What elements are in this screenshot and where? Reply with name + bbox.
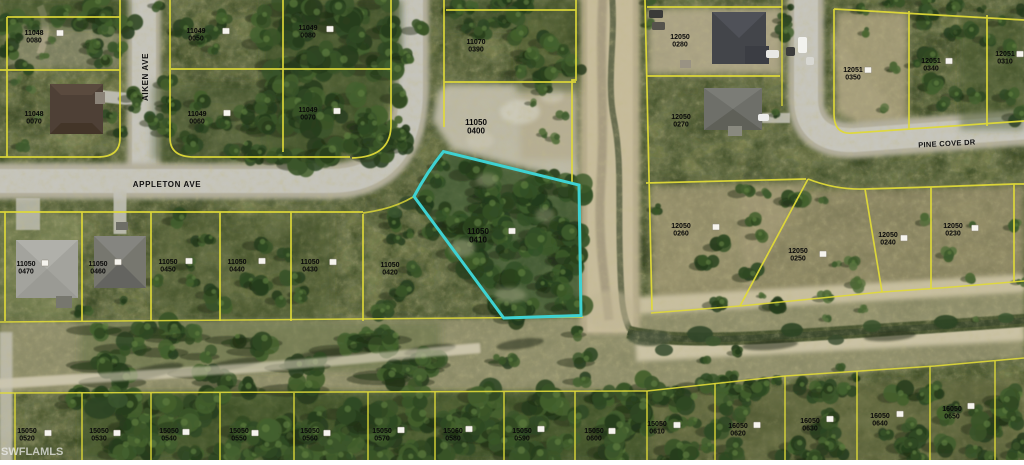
svg-text:0060: 0060 — [189, 119, 205, 126]
svg-text:APPLETON AVE: APPLETON AVE — [133, 180, 201, 189]
svg-text:12050: 12050 — [671, 114, 691, 121]
svg-text:0240: 0240 — [880, 240, 896, 247]
svg-text:0390: 0390 — [468, 47, 484, 54]
svg-text:16050: 16050 — [728, 423, 748, 430]
svg-text:0050: 0050 — [188, 36, 204, 43]
svg-text:11050: 11050 — [300, 259, 319, 266]
svg-text:0470: 0470 — [18, 269, 34, 276]
svg-text:11070: 11070 — [466, 39, 485, 46]
svg-text:11050: 11050 — [16, 261, 35, 268]
svg-text:15050: 15050 — [372, 428, 392, 435]
svg-text:0310: 0310 — [997, 59, 1013, 66]
svg-text:0080: 0080 — [26, 38, 42, 45]
svg-text:11049: 11049 — [298, 107, 317, 114]
svg-text:15050: 15050 — [584, 428, 604, 435]
svg-text:0230: 0230 — [945, 231, 961, 238]
svg-text:0570: 0570 — [374, 436, 390, 443]
svg-text:0580: 0580 — [445, 436, 461, 443]
svg-text:12051: 12051 — [921, 58, 941, 65]
svg-text:0600: 0600 — [586, 436, 602, 443]
svg-text:12051: 12051 — [995, 51, 1015, 58]
svg-text:0560: 0560 — [302, 436, 318, 443]
svg-text:12050: 12050 — [788, 248, 808, 255]
svg-text:11050: 11050 — [88, 261, 107, 268]
svg-text:0280: 0280 — [672, 42, 688, 49]
svg-text:16050: 16050 — [870, 413, 890, 420]
svg-text:15050: 15050 — [300, 428, 320, 435]
svg-text:0350: 0350 — [845, 75, 861, 82]
svg-text:12050: 12050 — [670, 34, 690, 41]
svg-text:11048: 11048 — [24, 30, 43, 37]
svg-text:0430: 0430 — [302, 267, 318, 274]
svg-text:0630: 0630 — [802, 426, 818, 433]
svg-text:15050: 15050 — [647, 421, 667, 428]
svg-text:0070: 0070 — [26, 119, 42, 126]
svg-text:12050: 12050 — [878, 232, 898, 239]
svg-text:11048: 11048 — [24, 111, 43, 118]
svg-text:11050: 11050 — [227, 259, 246, 266]
svg-text:0650: 0650 — [944, 414, 960, 421]
svg-text:16050: 16050 — [800, 418, 820, 425]
svg-text:0590: 0590 — [514, 436, 530, 443]
svg-text:0340: 0340 — [923, 66, 939, 73]
svg-text:0080: 0080 — [300, 33, 316, 40]
svg-text:15050: 15050 — [512, 428, 532, 435]
svg-text:0550: 0550 — [231, 436, 247, 443]
svg-text:11049: 11049 — [187, 111, 206, 118]
svg-text:SWFLAMLS: SWFLAMLS — [1, 446, 63, 458]
svg-text:AIKEN AVE: AIKEN AVE — [141, 53, 150, 101]
svg-text:15050: 15050 — [159, 428, 179, 435]
svg-text:0540: 0540 — [161, 436, 177, 443]
svg-text:0400: 0400 — [467, 127, 485, 136]
svg-text:0070: 0070 — [300, 115, 316, 122]
svg-text:0460: 0460 — [90, 269, 106, 276]
svg-text:16050: 16050 — [942, 406, 962, 413]
svg-text:0640: 0640 — [872, 421, 888, 428]
svg-text:15050: 15050 — [89, 428, 109, 435]
svg-text:11049: 11049 — [298, 25, 317, 32]
svg-text:0410: 0410 — [469, 236, 487, 245]
svg-text:11050: 11050 — [158, 259, 177, 266]
svg-text:12050: 12050 — [671, 223, 691, 230]
svg-text:0270: 0270 — [673, 122, 689, 129]
svg-text:15050: 15050 — [17, 428, 37, 435]
svg-text:0250: 0250 — [790, 256, 806, 263]
svg-text:15060: 15060 — [443, 428, 463, 435]
svg-text:0520: 0520 — [19, 436, 35, 443]
svg-text:0610: 0610 — [649, 429, 665, 436]
svg-text:0450: 0450 — [160, 267, 176, 274]
svg-text:0620: 0620 — [730, 431, 746, 438]
svg-text:12051: 12051 — [843, 67, 863, 74]
svg-text:15050: 15050 — [229, 428, 249, 435]
svg-text:12050: 12050 — [943, 223, 963, 230]
svg-text:0440: 0440 — [229, 267, 245, 274]
svg-text:11049: 11049 — [186, 28, 205, 35]
svg-text:0530: 0530 — [91, 436, 107, 443]
svg-text:0420: 0420 — [382, 270, 398, 277]
svg-text:11050: 11050 — [380, 262, 399, 269]
svg-text:0260: 0260 — [673, 231, 689, 238]
